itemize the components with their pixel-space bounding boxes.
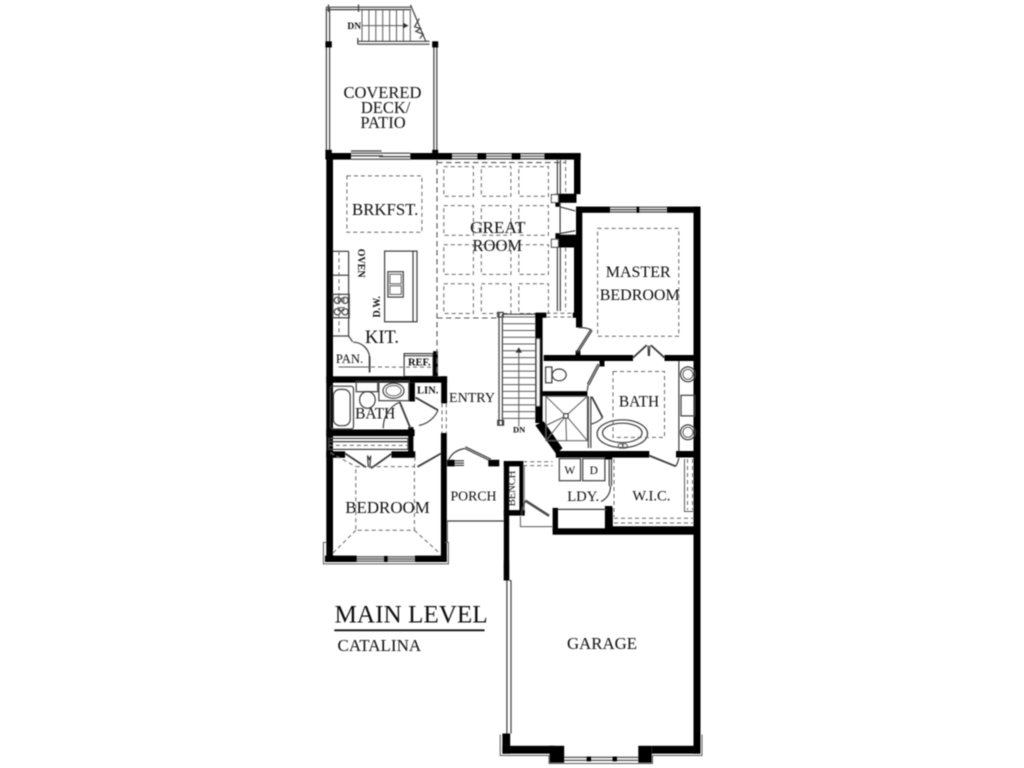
svg-text:D: D <box>590 465 598 477</box>
svg-text:LDY.: LDY. <box>567 489 599 505</box>
svg-text:DN: DN <box>347 22 361 32</box>
svg-text:BATH: BATH <box>619 393 659 410</box>
svg-text:KIT.: KIT. <box>365 328 399 348</box>
svg-text:D.W.: D.W. <box>372 296 383 318</box>
svg-text:GARAGE: GARAGE <box>567 634 637 653</box>
svg-text:BATH: BATH <box>355 405 395 422</box>
svg-text:BEDROOM: BEDROOM <box>600 287 680 304</box>
svg-text:BENCH: BENCH <box>507 470 518 506</box>
svg-text:REF.: REF. <box>408 357 431 368</box>
svg-text:LIN.: LIN. <box>417 386 439 397</box>
svg-text:OVEN: OVEN <box>355 249 366 279</box>
svg-text:DN: DN <box>513 425 526 435</box>
svg-text:BRKFST.: BRKFST. <box>352 200 418 219</box>
svg-text:MAIN LEVEL: MAIN LEVEL <box>335 601 488 628</box>
svg-text:W.I.C.: W.I.C. <box>632 488 670 504</box>
svg-text:MASTER: MASTER <box>606 264 671 281</box>
svg-text:W: W <box>564 465 575 477</box>
svg-text:PAN.: PAN. <box>336 352 363 366</box>
svg-text:PATIO: PATIO <box>360 113 405 132</box>
svg-text:PORCH: PORCH <box>450 488 496 503</box>
svg-text:GREAT: GREAT <box>470 218 526 237</box>
svg-text:ROOM: ROOM <box>472 236 522 255</box>
svg-text:CATALINA: CATALINA <box>338 636 422 655</box>
svg-text:ENTRY: ENTRY <box>449 391 495 406</box>
svg-text:BEDROOM: BEDROOM <box>345 498 429 517</box>
